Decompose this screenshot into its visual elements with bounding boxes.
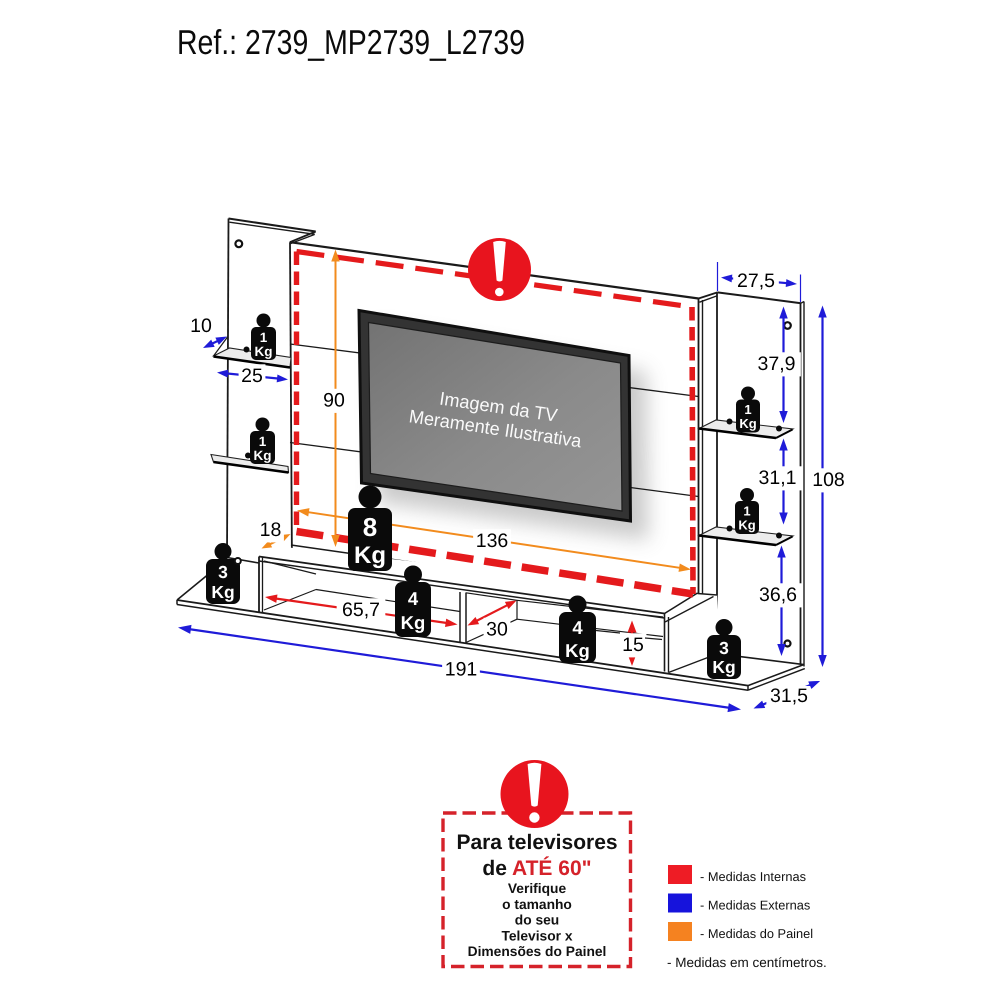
svg-text:- Medidas em centímetros.: - Medidas em centímetros.: [667, 955, 827, 970]
svg-text:18: 18: [260, 519, 282, 541]
svg-text:36,6: 36,6: [759, 584, 797, 606]
svg-text:8: 8: [363, 512, 377, 542]
svg-text:30: 30: [486, 619, 508, 641]
svg-text:Kg: Kg: [401, 612, 426, 633]
svg-text:Kg: Kg: [255, 344, 273, 359]
svg-text:37,9: 37,9: [758, 353, 796, 375]
svg-text:do seu: do seu: [515, 913, 559, 928]
svg-text:1: 1: [260, 330, 268, 345]
svg-text:de ATÉ 60": de ATÉ 60": [482, 856, 591, 880]
svg-text:Dimensões do Painel: Dimensões do Painel: [468, 944, 607, 959]
svg-text:27,5: 27,5: [737, 270, 775, 292]
svg-text:1: 1: [259, 434, 267, 449]
svg-text:3: 3: [218, 562, 228, 582]
svg-text:136: 136: [476, 530, 509, 552]
svg-text:Kg: Kg: [354, 542, 386, 569]
svg-text:Verifique: Verifique: [508, 881, 567, 896]
svg-text:108: 108: [812, 469, 845, 491]
svg-text:Kg: Kg: [565, 640, 590, 661]
svg-text:Kg: Kg: [211, 582, 234, 602]
svg-text:- Medidas Internas: - Medidas Internas: [700, 869, 806, 884]
svg-text:31,5: 31,5: [770, 685, 808, 707]
svg-text:3: 3: [719, 638, 729, 658]
svg-text:- Medidas do Painel: - Medidas do Painel: [700, 926, 813, 941]
svg-text:- Medidas Externas: - Medidas Externas: [700, 898, 810, 913]
svg-text:90: 90: [323, 390, 345, 412]
svg-text:25: 25: [241, 365, 263, 387]
svg-text:191: 191: [445, 659, 478, 681]
svg-text:Kg: Kg: [738, 518, 755, 533]
svg-text:1: 1: [744, 402, 751, 417]
svg-text:31,1: 31,1: [759, 467, 797, 489]
svg-text:1: 1: [743, 504, 750, 519]
svg-text:4: 4: [572, 617, 583, 638]
svg-text:Kg: Kg: [254, 448, 272, 463]
svg-text:Ref.: 2739_MP2739_L2739: Ref.: 2739_MP2739_L2739: [177, 24, 525, 62]
svg-text:10: 10: [190, 315, 212, 337]
svg-text:65,7: 65,7: [342, 599, 380, 621]
svg-text:Kg: Kg: [712, 657, 735, 677]
svg-text:15: 15: [622, 634, 644, 656]
svg-text:o tamanho: o tamanho: [502, 897, 572, 912]
svg-text:Kg: Kg: [739, 416, 756, 431]
svg-text:Para televisores: Para televisores: [456, 831, 617, 854]
svg-text:4: 4: [408, 588, 419, 609]
svg-text:Televisor x: Televisor x: [501, 928, 572, 943]
